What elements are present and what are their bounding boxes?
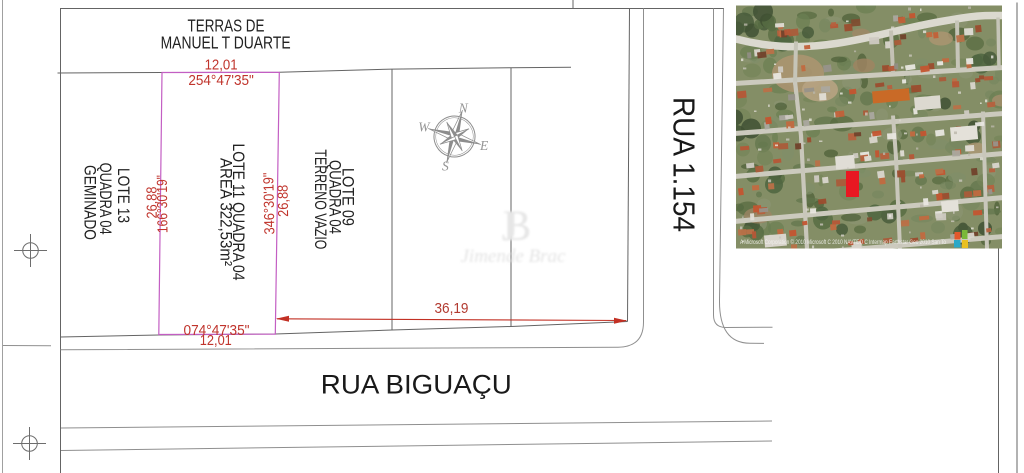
svg-text:B: B — [503, 203, 532, 250]
svg-text:166°30'19": 166°30'19" — [155, 175, 172, 233]
svg-text:26,88: 26,88 — [275, 185, 292, 217]
svg-text:GEMINADO: GEMINADO — [81, 165, 99, 240]
svg-text:A Microsoft Corporation © 2010: A Microsoft Corporation © 2010 Microsoft… — [740, 239, 947, 246]
svg-text:254°47'35": 254°47'35" — [188, 73, 254, 89]
svg-text:N: N — [458, 100, 469, 115]
svg-text:TERRENO VAZIO: TERRENO VAZIO — [311, 149, 329, 249]
svg-text:MANUEL T DUARTE: MANUEL T DUARTE — [161, 33, 291, 53]
svg-text:36,19: 36,19 — [435, 300, 469, 317]
svg-text:12,01: 12,01 — [200, 333, 232, 349]
svg-text:LOTE 11 QUADRA 04: LOTE 11 QUADRA 04 — [229, 144, 247, 281]
svg-text:W: W — [418, 120, 431, 135]
svg-text:S: S — [442, 159, 449, 174]
svg-text:E: E — [479, 138, 489, 153]
svg-text:RUA BIGUAÇU: RUA BIGUAÇU — [321, 370, 512, 400]
svg-text:Jimende Brac: Jimende Brac — [461, 246, 567, 267]
svg-text:RUA 1.154: RUA 1.154 — [667, 97, 702, 232]
svg-text:12,01: 12,01 — [205, 58, 238, 74]
svg-text:LOTE 13: LOTE 13 — [114, 168, 132, 223]
